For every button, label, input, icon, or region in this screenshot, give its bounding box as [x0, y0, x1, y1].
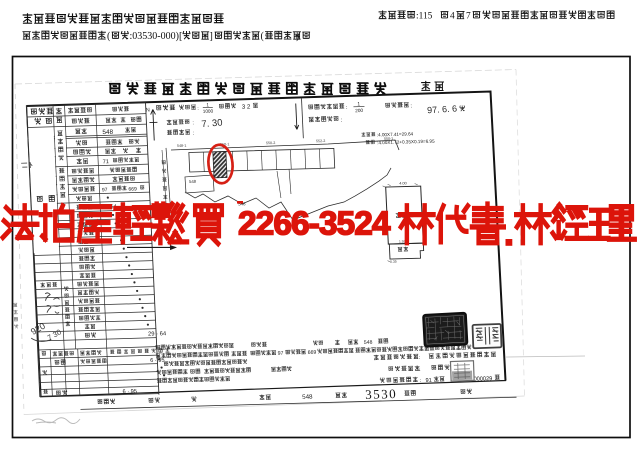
- svg-text:669: 669: [128, 186, 137, 192]
- svg-text:4.00: 4.00: [399, 181, 407, 185]
- svg-text::: :: [193, 131, 195, 137]
- svg-text:1000: 1000: [203, 109, 214, 114]
- svg-text:200: 200: [355, 108, 364, 114]
- svg-text:550-1: 550-1: [384, 137, 393, 141]
- svg-text:29 · 64: 29 · 64: [148, 331, 167, 338]
- svg-text:4: 4: [450, 12, 455, 22]
- svg-text:97. 6. 6: 97. 6. 6: [427, 103, 458, 115]
- svg-text:6 · 95: 6 · 95: [122, 389, 137, 395]
- svg-text:97: 97: [278, 351, 284, 357]
- svg-text:550-2: 550-2: [266, 141, 275, 145]
- svg-text::4.00X7.41=29.64: :4.00X7.41=29.64: [377, 131, 414, 137]
- svg-text:): ): [296, 31, 299, 42]
- svg-text:3 2: 3 2: [242, 104, 251, 111]
- svg-text:552-2: 552-2: [316, 139, 325, 143]
- svg-text:548: 548: [102, 129, 113, 136]
- svg-text:97: 97: [102, 187, 108, 193]
- svg-text:548: 548: [302, 394, 313, 401]
- svg-text:7: 7: [466, 12, 471, 22]
- svg-text:2266-3524: 2266-3524: [238, 206, 391, 243]
- svg-text:7. 30: 7. 30: [201, 117, 223, 130]
- svg-text:548: 548: [189, 179, 197, 184]
- svg-text::03530-000)[: :03530-000)[: [130, 31, 183, 42]
- svg-text:3530: 3530: [365, 386, 398, 402]
- svg-text:669: 669: [308, 350, 317, 356]
- svg-text::: :: [197, 106, 199, 112]
- svg-text:000029: 000029: [474, 376, 493, 383]
- svg-text:548-1: 548-1: [177, 144, 186, 148]
- svg-text:548: 548: [364, 340, 373, 346]
- svg-text:0.35: 0.35: [390, 260, 397, 264]
- svg-text:6 · 95: 6 · 95: [150, 358, 165, 364]
- svg-text:91: 91: [426, 378, 433, 384]
- svg-text:71: 71: [103, 159, 110, 165]
- svg-text::115: :115: [416, 12, 433, 22]
- svg-text::: :: [192, 120, 194, 126]
- svg-text:N: N: [146, 108, 150, 114]
- svg-text:]: ]: [210, 31, 213, 42]
